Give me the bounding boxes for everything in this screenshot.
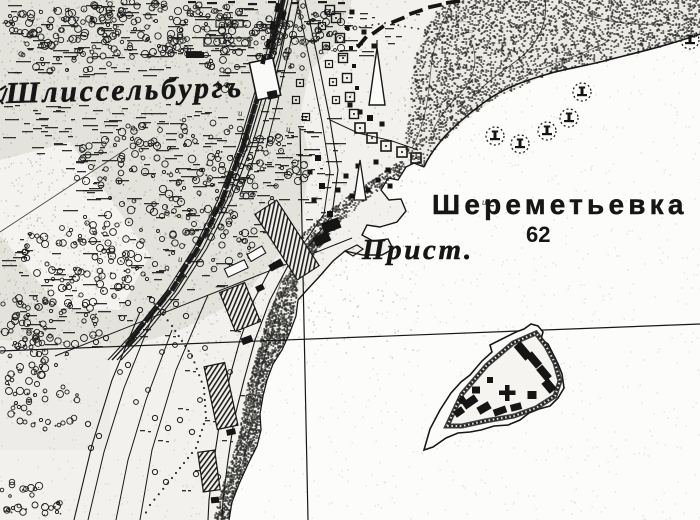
svg-text:и: и (178, 254, 183, 264)
svg-text:и: и (286, 124, 291, 134)
svg-text:и: и (455, 20, 460, 30)
svg-text:Шереметьевка: Шереметьевка (432, 189, 688, 220)
svg-text:и: и (238, 108, 243, 118)
svg-text:и: и (208, 210, 213, 220)
svg-text:Шлиссельбургъ: Шлиссельбургъ (4, 71, 244, 110)
svg-text:и: и (420, 112, 425, 122)
svg-text:Прист.: Прист. (361, 234, 474, 266)
svg-text:62: 62 (526, 222, 550, 247)
